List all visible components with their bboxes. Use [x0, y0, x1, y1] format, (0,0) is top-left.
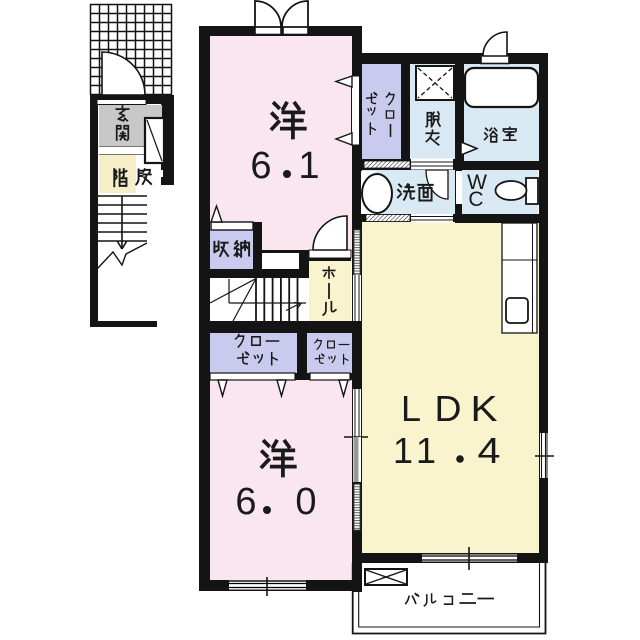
svg-text:0: 0 — [295, 481, 316, 523]
svg-text:6: 6 — [250, 145, 271, 187]
svg-text:1: 1 — [298, 145, 319, 187]
svg-text:C: C — [468, 188, 483, 211]
svg-text:L: L — [401, 388, 421, 429]
svg-text:6: 6 — [235, 481, 256, 523]
svg-text:1: 1 — [393, 430, 413, 471]
svg-text:K: K — [471, 388, 498, 429]
svg-text:4: 4 — [478, 430, 501, 471]
svg-text:D: D — [435, 388, 462, 429]
svg-text:1: 1 — [416, 430, 436, 471]
